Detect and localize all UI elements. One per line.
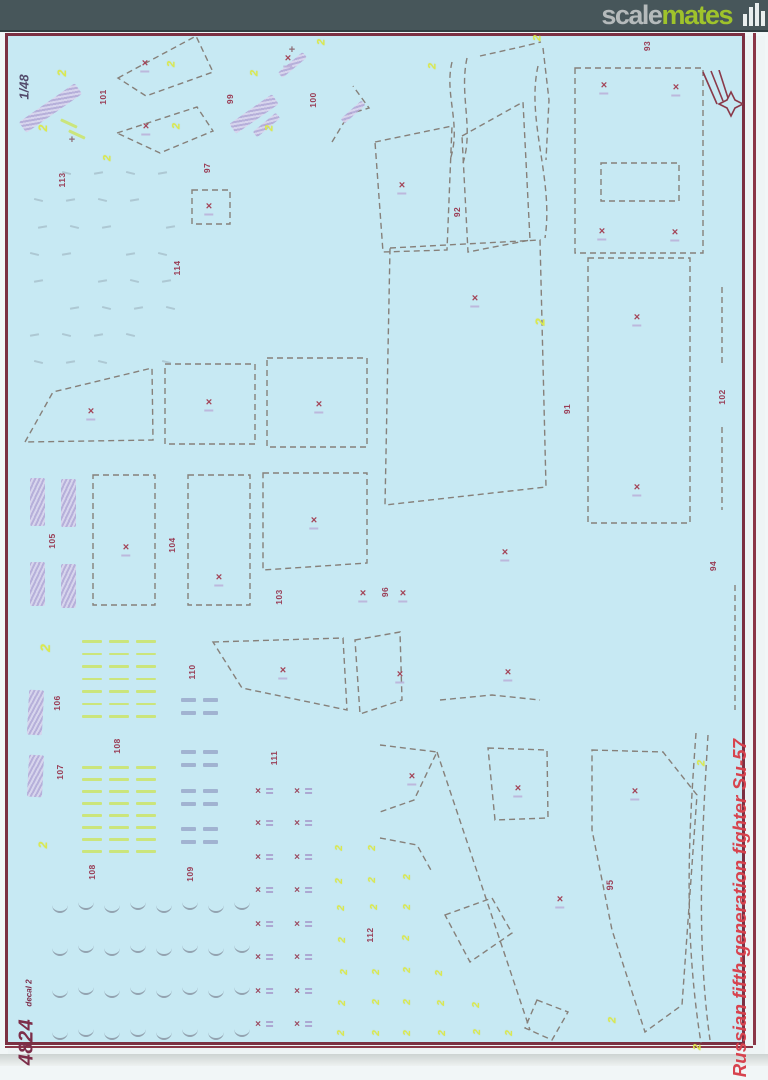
green-stripe-decal	[82, 653, 102, 656]
part-number-label: 99	[225, 94, 235, 104]
registration-x-mark: ×	[472, 294, 478, 305]
registration-x-mark: ×	[399, 181, 405, 192]
green-stripe-decal	[136, 766, 156, 769]
decal-sheet-scan: 1011139997114100929391102969410310510410…	[0, 30, 768, 1064]
part-number-label: 113	[57, 173, 67, 188]
green-stripe-decal	[109, 850, 129, 853]
part-number-label: 106	[52, 695, 62, 710]
quantity-2-mark: 2	[437, 1000, 447, 1006]
stencil-x-mark: ×	[294, 819, 300, 829]
quantity-2-mark: 2	[103, 155, 114, 161]
site-header-bar: scale mates	[0, 0, 768, 32]
green-stripe-decal	[82, 640, 102, 643]
product-code: 4824	[16, 1019, 39, 1066]
green-stripe-decal	[82, 690, 102, 693]
quantity-2-mark: 2	[403, 967, 413, 973]
registration-x-mark: ×	[88, 407, 94, 418]
part-number-label: 112	[365, 928, 375, 943]
quantity-2-mark: 2	[250, 70, 261, 76]
registration-x-mark: ×	[316, 400, 322, 411]
part-number-label: 95	[605, 880, 615, 891]
registration-x-mark: ×	[280, 666, 286, 677]
registration-x-mark: ×	[505, 668, 511, 679]
blue-stencil-decal	[181, 763, 196, 767]
quantity-2-mark: 2	[335, 878, 345, 884]
green-stripe-decal	[136, 814, 156, 817]
quantity-2-mark: 2	[37, 125, 49, 132]
blue-stencil-decal	[203, 750, 218, 754]
quantity-2-mark: 2	[473, 1029, 483, 1035]
green-stripe-decal	[109, 766, 129, 769]
registration-x-mark: ×	[599, 227, 605, 238]
registration-x-mark: ×	[360, 589, 366, 600]
green-stripe-decal	[136, 703, 156, 706]
registration-x-mark: ×	[206, 398, 212, 409]
quantity-2-mark: 2	[265, 125, 276, 131]
stencil-x-mark: ×	[255, 819, 261, 829]
registration-x-mark: ×	[557, 895, 563, 906]
registration-x-mark: ×	[672, 228, 678, 239]
part-number-label: 104	[167, 537, 177, 552]
green-stripe-decal	[109, 640, 129, 643]
registration-x-mark: ×	[311, 516, 317, 527]
registration-x-mark: ×	[673, 83, 679, 94]
quantity-2-mark: 2	[338, 937, 348, 943]
green-stripe-decal	[136, 826, 156, 829]
scalemates-logo[interactable]: scale mates	[601, 2, 732, 29]
lilac-decal-strip	[30, 478, 45, 526]
registration-x-mark: ×	[632, 787, 638, 798]
sheet-content: 1011139997114100929391102969410310510410…	[0, 30, 768, 1064]
green-stripe-decal	[109, 690, 129, 693]
blue-stencil-decal	[203, 763, 218, 767]
green-stripe-decal	[82, 814, 102, 817]
quantity-2-mark: 2	[37, 842, 49, 849]
quantity-2-mark: 2	[368, 845, 378, 851]
green-stripe-decal	[136, 850, 156, 853]
quantity-2-mark: 2	[370, 904, 380, 910]
logo-text-mates: mates	[661, 2, 732, 29]
quantity-2-mark: 2	[438, 1030, 448, 1036]
lilac-decal-strip	[26, 689, 43, 735]
stencil-x-mark: ×	[294, 987, 300, 997]
green-stripe-decal	[82, 826, 102, 829]
green-stripe-decal	[136, 678, 156, 681]
quantity-2-mark: 2	[534, 318, 547, 325]
stencil-x-mark: ×	[255, 787, 261, 797]
green-stripe-decal	[109, 715, 129, 718]
part-number-label: 101	[98, 89, 108, 104]
registration-x-mark: ×	[143, 122, 149, 133]
registration-x-mark: ×	[601, 81, 607, 92]
quantity-2-mark: 2	[338, 1000, 348, 1006]
quantity-2-mark: 2	[372, 1030, 382, 1036]
part-number-label: 107	[55, 764, 65, 779]
part-number-label: 94	[708, 561, 718, 571]
green-stripe-decal	[136, 653, 156, 656]
stencil-x-mark: ×	[294, 787, 300, 797]
blue-stencil-decal	[203, 840, 218, 844]
green-stripe-decal	[136, 838, 156, 841]
quantity-2-mark: 2	[608, 1017, 619, 1023]
green-stripe-decal	[82, 850, 102, 853]
green-stripe-decal	[136, 790, 156, 793]
brand-emblem-icon	[697, 70, 743, 122]
green-stripe-decal	[109, 790, 129, 793]
quantity-2-mark: 2	[697, 760, 708, 766]
part-number-label: 93	[642, 41, 652, 51]
registration-x-mark: ×	[515, 784, 521, 795]
stencil-x-mark: ×	[255, 920, 261, 930]
quantity-2-mark: 2	[167, 61, 178, 67]
blue-stencil-decal	[181, 698, 196, 702]
part-number-label: 102	[717, 389, 727, 404]
lilac-decal-strip	[30, 562, 45, 606]
blue-stencil-decal	[203, 698, 218, 702]
product-code-sub: decal 2	[25, 979, 34, 1006]
blue-stencil-decal	[181, 789, 196, 793]
part-number-label: 114	[172, 261, 182, 276]
registration-x-mark: ×	[400, 589, 406, 600]
green-stripe-decal	[109, 653, 129, 656]
quantity-2-mark: 2	[533, 35, 544, 41]
quantity-2-mark: 2	[38, 644, 52, 652]
part-number-label: 96	[380, 587, 390, 597]
lilac-decal-strip	[61, 479, 76, 527]
part-number-label: 100	[308, 92, 318, 107]
registration-x-mark: ×	[634, 483, 640, 494]
part-number-label: 91	[562, 404, 572, 414]
plus-mark: +	[69, 134, 75, 146]
green-stripe-decal	[136, 802, 156, 805]
registration-x-mark: ×	[634, 313, 640, 324]
green-stripe-decal	[109, 814, 129, 817]
blue-stencil-decal	[181, 840, 196, 844]
sheet-title: Russian fifth-generation fighter Su-57	[729, 739, 751, 1078]
green-stripe-decal	[109, 703, 129, 706]
quantity-2-mark: 2	[403, 874, 413, 880]
registration-x-mark: ×	[216, 573, 222, 584]
stencil-x-mark: ×	[255, 987, 261, 997]
stencil-x-mark: ×	[255, 1020, 261, 1030]
blue-stencil-decal	[203, 711, 218, 715]
lilac-decal-strip	[61, 564, 76, 608]
quantity-2-mark: 2	[337, 905, 347, 911]
registration-x-mark: ×	[142, 59, 148, 70]
part-number-label: 109	[185, 866, 195, 881]
registration-x-mark: ×	[123, 543, 129, 554]
quantity-2-mark: 2	[335, 845, 345, 851]
part-number-label: 108	[87, 864, 97, 879]
quantity-2-mark: 2	[472, 1002, 482, 1008]
green-stripe-decal	[136, 665, 156, 668]
green-stripe-decal	[136, 690, 156, 693]
green-stripe-decal	[82, 715, 102, 718]
green-stripe-decal	[82, 778, 102, 781]
registration-x-mark: ×	[206, 202, 212, 213]
quantity-2-mark: 2	[340, 969, 350, 975]
green-stripe-decal	[109, 778, 129, 781]
green-stripe-decal	[82, 665, 102, 668]
bar-chart-icon	[741, 2, 765, 26]
quantity-2-mark: 2	[317, 39, 328, 45]
green-stripe-decal	[82, 678, 102, 681]
part-number-label: 103	[274, 589, 284, 604]
lilac-decal-strip	[26, 755, 43, 798]
blue-stencil-decal	[203, 789, 218, 793]
green-stripe-decal	[109, 678, 129, 681]
logo-text-scale: scale	[601, 2, 661, 29]
part-number-label: 97	[202, 163, 212, 173]
part-number-label: 110	[187, 665, 197, 680]
stencil-x-mark: ×	[294, 1020, 300, 1030]
quantity-2-mark: 2	[403, 904, 413, 910]
part-number-label: 108	[112, 738, 122, 753]
green-stripe-decal	[109, 826, 129, 829]
quantity-2-mark: 2	[337, 1030, 347, 1036]
stencil-x-mark: ×	[294, 886, 300, 896]
blue-stencil-decal	[203, 827, 218, 831]
green-stripe-decal	[109, 838, 129, 841]
stencil-x-mark: ×	[255, 953, 261, 963]
green-stripe-decal	[82, 790, 102, 793]
registration-x-mark: ×	[502, 548, 508, 559]
part-number-label: 105	[47, 533, 57, 548]
green-stripe-decal	[82, 703, 102, 706]
blue-stencil-decal	[203, 802, 218, 806]
scale-label: 1/48	[17, 74, 32, 99]
blue-stencil-decal	[181, 802, 196, 806]
blue-stencil-decal	[181, 711, 196, 715]
quantity-2-mark: 2	[403, 999, 413, 1005]
green-stripe-decal	[136, 715, 156, 718]
registration-x-mark: ×	[409, 772, 415, 783]
stencil-x-mark: ×	[294, 853, 300, 863]
quantity-2-mark: 2	[693, 1044, 704, 1050]
part-number-label: 111	[269, 751, 279, 765]
registration-x-mark: ×	[397, 670, 403, 681]
blue-stencil-decal	[181, 750, 196, 754]
green-stripe-decal	[82, 802, 102, 805]
quantity-2-mark: 2	[428, 63, 439, 69]
quantity-2-mark: 2	[435, 970, 445, 976]
quantity-2-mark: 2	[172, 123, 183, 129]
green-stripe-decal	[82, 766, 102, 769]
green-stripe-decal	[136, 778, 156, 781]
quantity-2-mark: 2	[56, 70, 68, 77]
quantity-2-mark: 2	[372, 999, 382, 1005]
quantity-2-mark: 2	[372, 969, 382, 975]
quantity-2-mark: 2	[403, 1030, 413, 1036]
registration-x-mark: ×	[285, 54, 291, 65]
stencil-x-mark: ×	[294, 953, 300, 963]
green-stripe-decal	[109, 802, 129, 805]
blue-stencil-decal	[181, 827, 196, 831]
green-stripe-decal	[136, 640, 156, 643]
stencil-x-mark: ×	[294, 920, 300, 930]
stencil-x-mark: ×	[255, 886, 261, 896]
stencil-x-mark: ×	[255, 853, 261, 863]
green-stripe-decal	[82, 838, 102, 841]
quantity-2-mark: 2	[402, 935, 412, 941]
green-stripe-decal	[109, 665, 129, 668]
quantity-2-mark: 2	[505, 1030, 515, 1036]
quantity-2-mark: 2	[368, 877, 378, 883]
part-number-label: 92	[452, 207, 462, 217]
